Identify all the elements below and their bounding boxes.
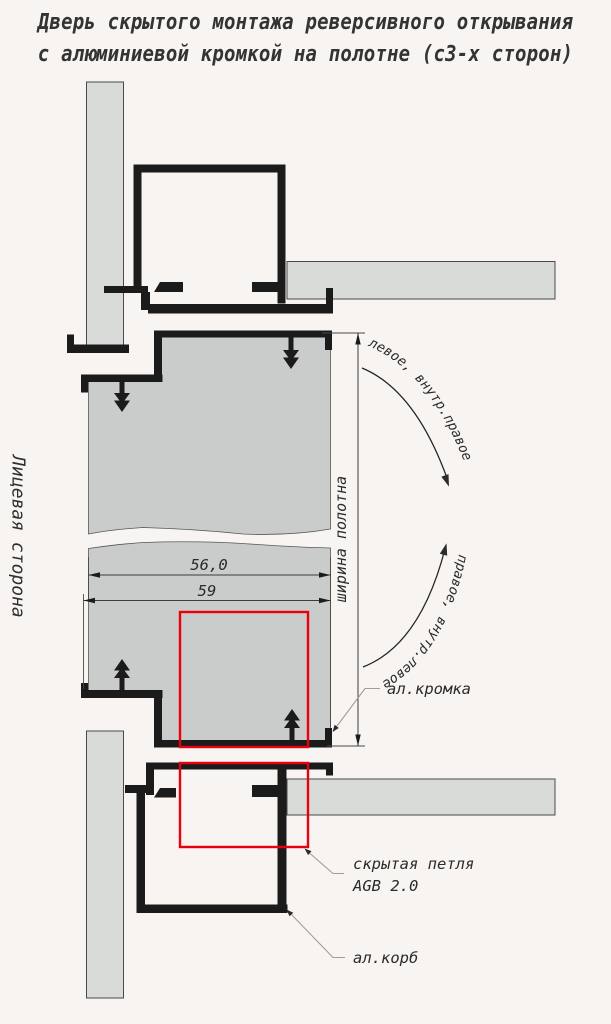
frame-top-right-lip [252,282,278,292]
frame-bottom-bottom-edge [137,905,288,914]
frame-bottom-right-edge [278,770,287,914]
arrow-stem [120,379,125,395]
swing-label-upper: левое, внутр.правое [365,335,475,463]
door-panel-upper [89,336,331,534]
panel-edge-bottom-step [154,690,162,748]
frame-top-top-edge [134,165,286,173]
dim-arrow-icon [355,333,360,345]
leader-edge [334,689,380,731]
frame-top-right-hook [326,288,333,313]
drawing-canvas: Дверь скрытого монтажа реверсивного откр… [0,0,611,1024]
dim-value-panel-width: 56,0 [190,556,227,574]
panel-edge-bottom-left-hook [81,683,88,698]
panel-edge-top-step [154,331,162,382]
arrow-stem [120,676,125,692]
leader-frame [288,911,345,958]
leader-hinge [306,850,344,874]
arrow-stem [289,336,294,352]
panel-edge-top-cap [154,331,332,338]
swing-arrowhead-icon [440,543,447,556]
swing-label-upper-text: левое, внутр.правое [365,335,475,463]
wall-top-left [87,82,124,345]
frame-bottom-left-edge [137,788,146,913]
frame-top-right-edge [278,165,286,304]
architrave-top-hook [67,335,74,353]
wall-sections [87,82,556,998]
arrow-stem [290,726,295,742]
frame-bottom-left-lip [154,788,176,798]
frame-top-left-edge [134,165,142,293]
wall-bottom-right [287,779,555,815]
frame-top-bottom-bar [148,304,333,314]
dim-value-overall-width: 59 [198,582,217,600]
panel-edge-top-left-hook [81,375,88,393]
dim-arrow-icon [355,735,360,747]
dim-label-panel-width: ширина полотна [332,476,350,602]
callout-hinge-line2: AGB 2.0 [352,877,418,895]
architrave-top [67,345,129,354]
technical-drawing: 56,0 59 ширина полотна левое, внутр.прав… [0,0,611,1024]
frame-top-left-lip [154,282,183,292]
panel-edge-bottom-right-hook [325,728,332,748]
frame-top-flange [104,286,148,293]
frame-bottom-right-lip [252,785,278,797]
swing-label-lower-text: правое, внутр.левое [379,553,470,692]
callout-edge: ал.кромка [387,680,471,698]
swing-label-lower: правое, внутр.левое [379,553,470,692]
callout-hinge-line1: скрытая петля [353,855,474,873]
frame-bottom-right-hook [326,763,333,776]
callout-frame: ал.корб [353,949,418,967]
wall-bottom-left [87,731,124,998]
leader-arrowhead-icon [333,725,339,732]
frame-bottom-step [146,769,154,795]
swing-arcs: левое, внутр.правое правое, внутр.левое [362,335,475,693]
swing-arrowhead-icon [441,474,449,487]
